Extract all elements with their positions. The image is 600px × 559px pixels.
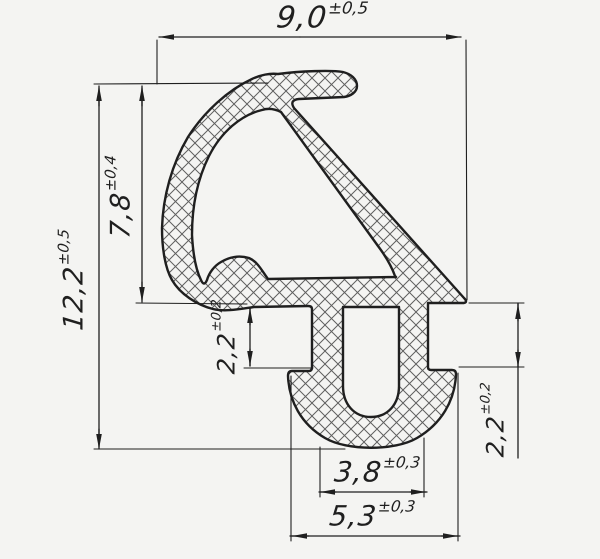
profile-shape: [162, 71, 466, 448]
dim-value: 2,2: [482, 414, 510, 458]
dim-value: 3,8: [333, 456, 384, 489]
dimension-left-notch: [244, 308, 313, 368]
dim-tolerance: ±0,3: [377, 498, 416, 516]
dim-value: 5,3: [328, 500, 379, 533]
dim-label-upper-height: 7,8±0,4: [102, 154, 137, 240]
dim-label-left-notch-height: 2,2±0,2: [210, 299, 241, 375]
dim-label-foot-outer-width: 5,3±0,3: [328, 498, 417, 533]
dim-tolerance: ±0,5: [327, 0, 369, 18]
dim-value: 12,2: [59, 265, 90, 332]
dim-label-overall-height: 12,2±0,5: [55, 228, 90, 332]
dim-tolerance: ±0,2: [210, 299, 225, 333]
dim-label-overall-width: 9,0±0,5: [275, 0, 370, 36]
seal-profile-drawing: [0, 0, 600, 559]
dim-value: 7,8: [106, 191, 137, 240]
dim-label-right-notch-height: 2,2±0,2: [479, 382, 510, 458]
dim-tolerance: ±0,2: [479, 382, 494, 416]
technical-drawing-page: 9,0±0,5 12,2±0,5 7,8±0,4 2,2±0,2 2,2±0,2…: [0, 0, 600, 559]
dim-tolerance: ±0,4: [102, 154, 120, 192]
dim-tolerance: ±0,5: [55, 228, 73, 266]
dim-value: 9,0: [275, 1, 329, 36]
dim-label-foot-inner-width: 3,8±0,3: [333, 454, 422, 489]
dim-tolerance: ±0,3: [382, 454, 421, 472]
dim-value: 2,2: [213, 331, 241, 375]
profile-outline: [162, 71, 466, 448]
